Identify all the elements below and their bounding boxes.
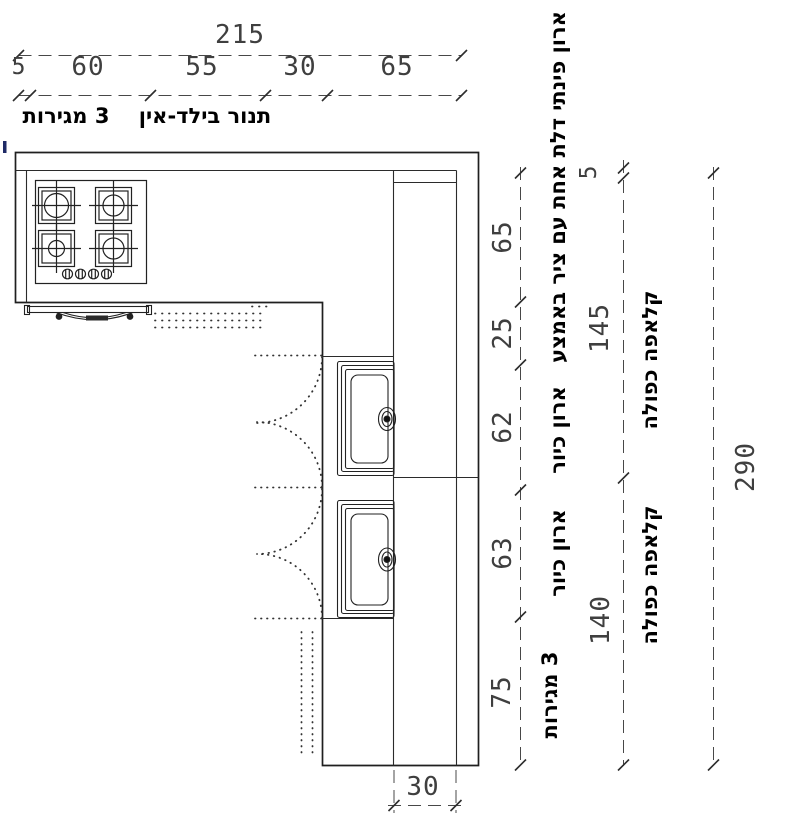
- dim-right-seg-65: 65: [488, 220, 518, 253]
- label-drawers-top: 3 מגירות: [23, 104, 110, 128]
- dim-top-seg-60: 60: [71, 52, 104, 82]
- counter-dot-grid: [155, 307, 267, 328]
- cooktop-knobs: [63, 269, 112, 279]
- sink-lower: [338, 501, 396, 618]
- cooktop: [32, 181, 147, 284]
- dim-right-seg-25: 25: [488, 316, 518, 349]
- label-double-flap-2: קלאפה כפולה: [638, 505, 662, 644]
- cooktop-panel: [36, 181, 147, 284]
- label-drawers-bottom: 3 מגירות: [538, 652, 562, 739]
- wall-outline: [16, 153, 479, 766]
- dim-top-seg-65: 65: [380, 52, 413, 82]
- dim-mid-seg-5: 5: [576, 165, 602, 180]
- dimension-lines: [19, 56, 714, 814]
- dim-overall-height: 290: [731, 442, 761, 492]
- dim-mid-seg-145: 145: [585, 303, 615, 353]
- plan-linework: [0, 0, 791, 833]
- dim-top-total: 215: [215, 20, 265, 50]
- dim-right-seg-62: 62: [488, 410, 518, 443]
- label-corner-cabinet: ארון פינתי דלת אחת עם ציר באמצע: [546, 11, 570, 363]
- oven-handle: [25, 306, 152, 321]
- dim-top-seg-5: 5: [12, 54, 27, 80]
- door-swing-dotted: [255, 356, 322, 759]
- dim-right-seg-63: 63: [488, 536, 518, 569]
- label-double-flap-1: קלאפה כפולה: [638, 290, 662, 429]
- cabinet-lines: [16, 171, 479, 766]
- dim-bottom-depth: 30: [406, 772, 439, 802]
- accent-mark: [3, 141, 7, 153]
- kitchen-plan-canvas: 215 5 60 55 30 65 65 25 62 63 75 5 145 1…: [0, 0, 791, 833]
- label-sink-cabinet-1: ארון כיור: [546, 386, 570, 474]
- label-sink-cabinet-2: ארון כיור: [546, 509, 570, 597]
- dim-top-seg-30: 30: [283, 52, 316, 82]
- label-oven-built-in: תנור בילד-אין: [139, 104, 271, 128]
- dim-mid-seg-140: 140: [586, 595, 616, 645]
- dimension-ticks: [13, 50, 719, 811]
- dim-top-seg-55: 55: [185, 52, 218, 82]
- dim-right-seg-75: 75: [487, 675, 517, 708]
- sink-upper: [338, 362, 396, 476]
